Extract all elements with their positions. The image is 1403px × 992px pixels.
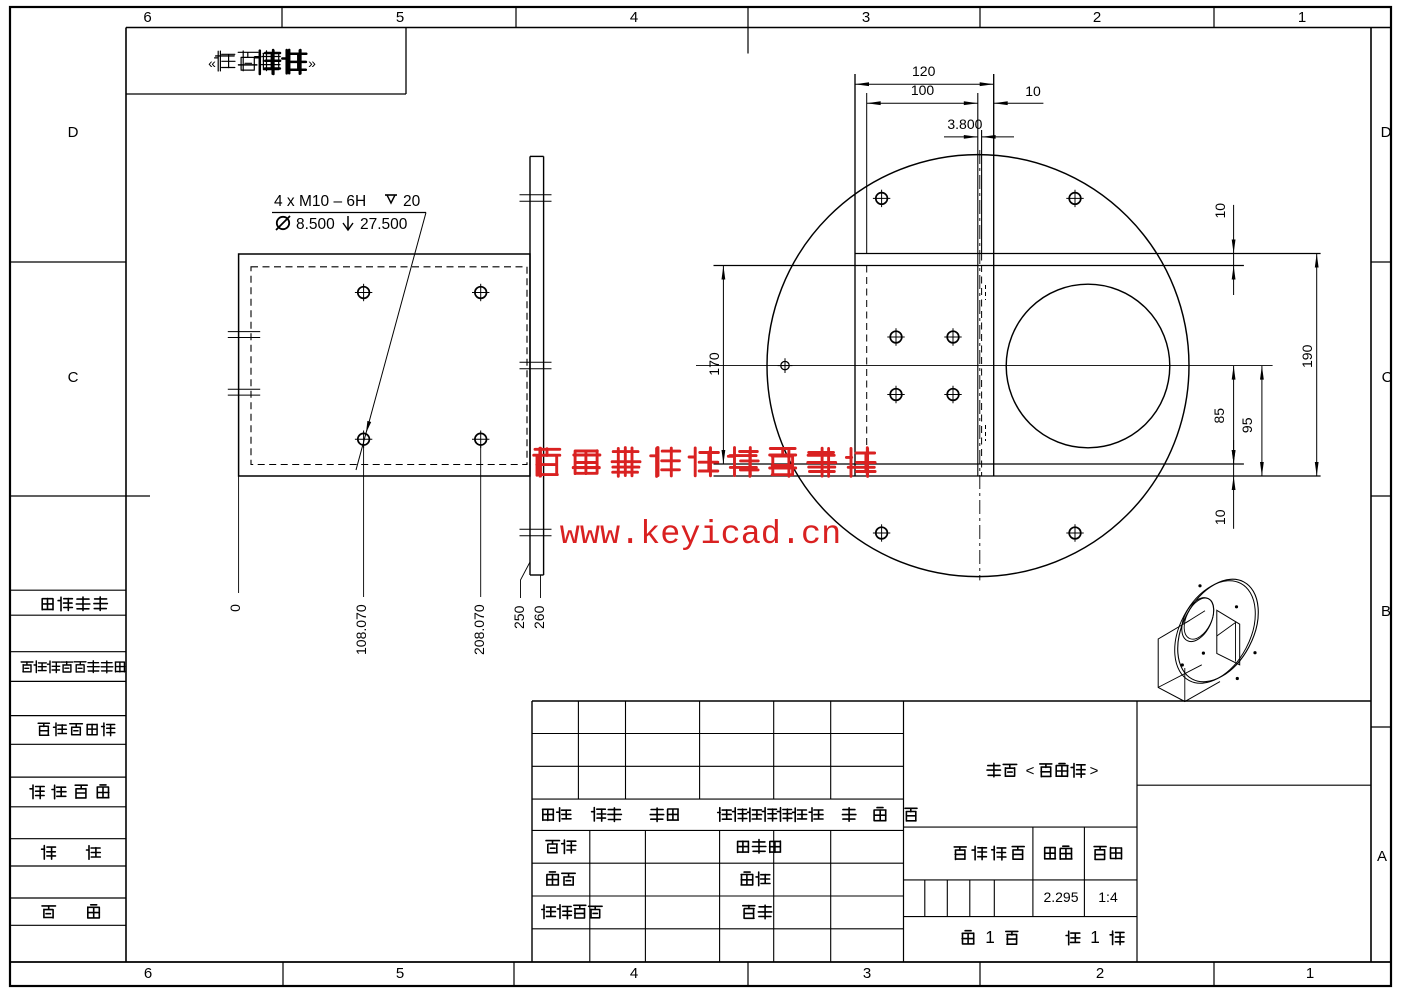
svg-text:10: 10: [1212, 509, 1228, 525]
svg-text:3.800: 3.800: [947, 116, 982, 132]
svg-text:27.500: 27.500: [360, 216, 408, 233]
svg-text:190: 190: [1299, 344, 1315, 368]
svg-text:10: 10: [1025, 83, 1041, 99]
svg-text:170: 170: [706, 352, 722, 376]
svg-text:5: 5: [396, 9, 404, 26]
svg-text:D: D: [1381, 124, 1392, 141]
svg-text:3: 3: [863, 965, 871, 982]
svg-text:A: A: [1377, 848, 1387, 865]
svg-text:C: C: [1382, 369, 1393, 386]
svg-text:6: 6: [144, 965, 152, 982]
svg-text:www.keyicad.cn: www.keyicad.cn: [560, 516, 841, 554]
svg-text:4: 4: [630, 9, 638, 26]
svg-text:B: B: [1381, 603, 1391, 620]
svg-text:3: 3: [862, 9, 870, 26]
svg-text:1: 1: [1298, 9, 1306, 26]
svg-text:2.295: 2.295: [1043, 889, 1078, 905]
svg-text:100: 100: [911, 82, 935, 98]
svg-text:6: 6: [143, 9, 151, 26]
svg-text:»: »: [308, 55, 316, 71]
svg-text:260: 260: [531, 605, 547, 629]
svg-text:95: 95: [1239, 417, 1255, 433]
svg-text:1:4: 1:4: [1098, 889, 1118, 905]
svg-text:1: 1: [985, 927, 995, 947]
svg-text:D: D: [68, 124, 79, 141]
svg-text:0: 0: [227, 604, 243, 612]
svg-text:108.070: 108.070: [353, 604, 369, 655]
svg-text:250: 250: [511, 605, 527, 629]
svg-text:>: >: [1090, 762, 1099, 779]
svg-text:10: 10: [1212, 203, 1228, 219]
svg-text:1: 1: [1306, 965, 1314, 982]
svg-text:1: 1: [1090, 927, 1100, 947]
svg-text:4 x M10 – 6H: 4 x M10 – 6H: [274, 193, 366, 210]
svg-text:120: 120: [912, 63, 936, 79]
svg-text:8.500: 8.500: [296, 216, 335, 233]
svg-text:20: 20: [403, 193, 421, 210]
svg-text:C: C: [68, 369, 79, 386]
svg-text:2: 2: [1093, 9, 1101, 26]
svg-text:5: 5: [396, 965, 404, 982]
svg-text:208.070: 208.070: [471, 604, 487, 655]
svg-text:2: 2: [1096, 965, 1104, 982]
svg-text:4: 4: [630, 965, 638, 982]
svg-text:85: 85: [1211, 408, 1227, 424]
svg-text:<: <: [1026, 762, 1035, 779]
